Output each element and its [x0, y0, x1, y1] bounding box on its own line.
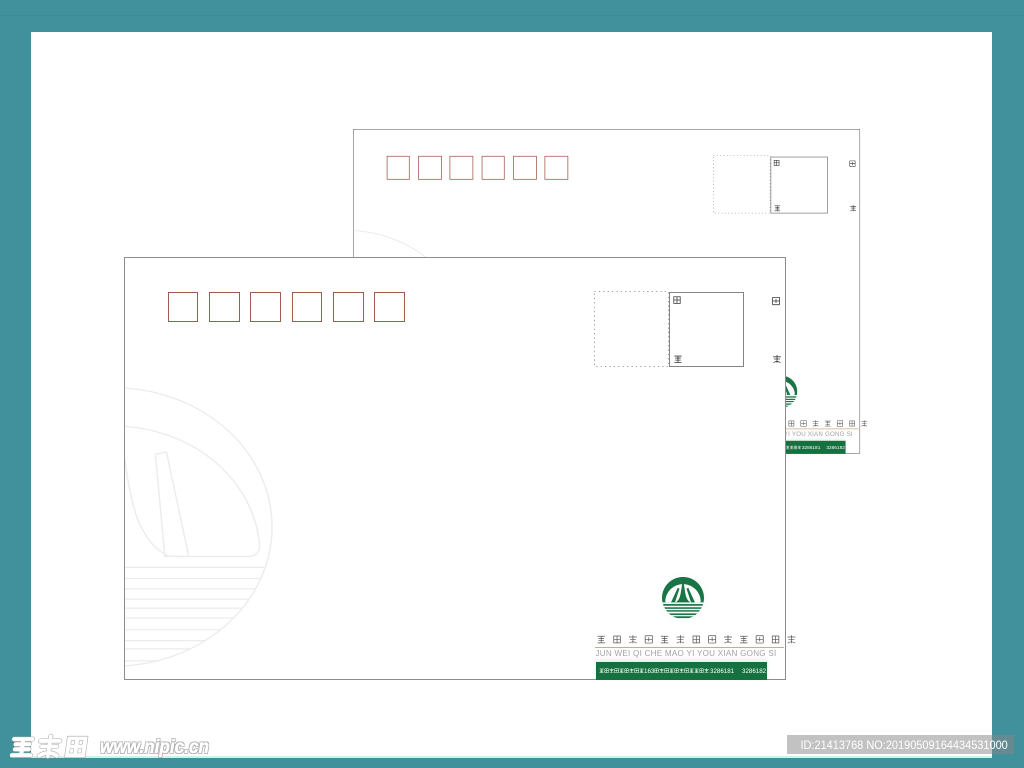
- svg-text:3286181: 3286181: [802, 445, 821, 451]
- svg-text:3286182: 3286182: [742, 668, 766, 675]
- svg-text:163: 163: [644, 668, 655, 675]
- svg-text:3286181: 3286181: [710, 668, 735, 675]
- svg-text:3286182: 3286182: [826, 445, 844, 451]
